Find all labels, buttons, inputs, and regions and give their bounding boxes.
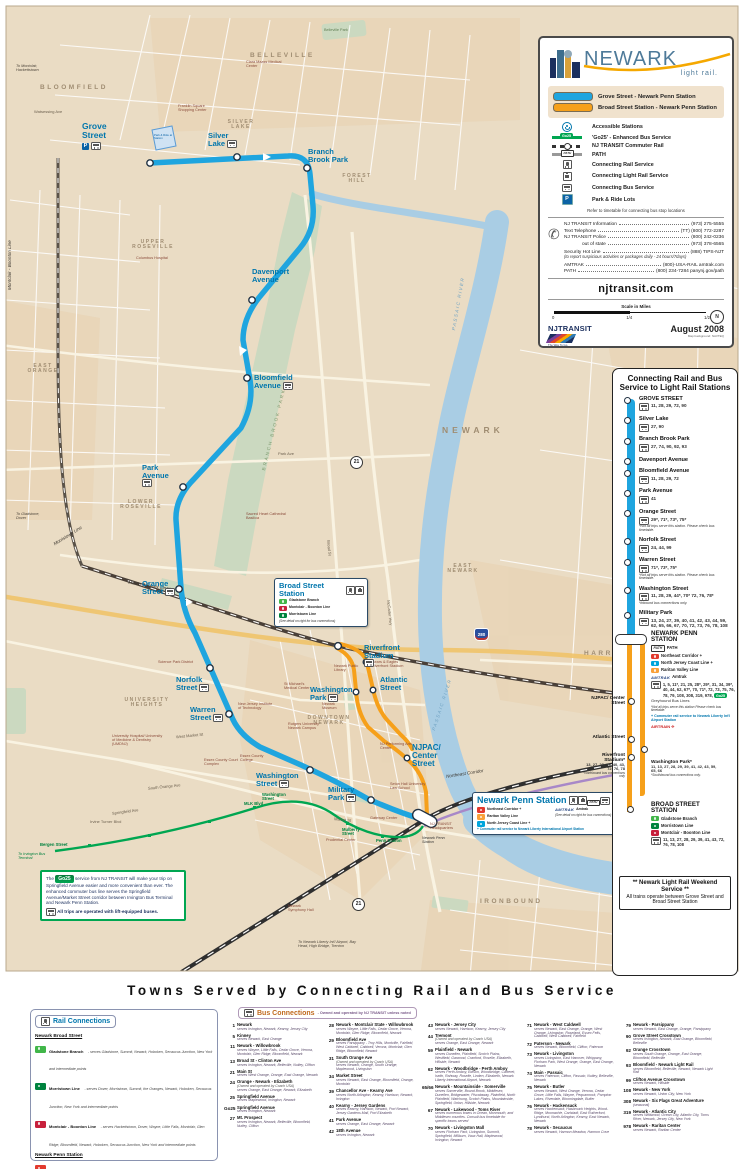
station-name: Norfolk Street: [639, 538, 733, 544]
go25-foot: All trips are operated with lift-equippe…: [46, 908, 180, 916]
connecting-rail-icon: [563, 160, 572, 169]
rail-line-row: Montclair - Boonton Line: [279, 606, 363, 612]
newark-penn-station-callout: Newark Penn Station PATH Northeast Corri…: [472, 792, 634, 835]
bus-route: 59 Plainfield - Newark serves Dunellen, …: [422, 1048, 516, 1064]
rail-line-icon: [477, 821, 485, 827]
station-name: Park Avenue: [639, 489, 733, 495]
bus-route-towns: serves Wildwood, Ocean City, Atlantic Ci…: [633, 1114, 714, 1122]
poi-label: Newark Public Library: [334, 664, 364, 672]
rail-line-icon: [35, 1041, 46, 1076]
bus-route-number: 31: [323, 1056, 334, 1072]
station-name: Warren Street: [190, 705, 216, 722]
route-label: Grove Street - Newark Penn Station: [598, 94, 696, 100]
path-label: PATH: [667, 646, 678, 650]
poi-label: Essex County College: [240, 754, 270, 762]
area-label: EAST ORANGE: [20, 364, 66, 375]
station-bus-row: 71*, 73*, 75*: [639, 565, 733, 573]
station-name: Davenport Avenue: [639, 458, 733, 464]
station-bus-row: 24, 44, 99: [639, 545, 733, 553]
bus-route-towns: serves Livingston, East Hanover, Whippan…: [534, 1057, 615, 1069]
rail-line-row: Morristown Line: [279, 613, 363, 619]
section-title: Towns Served by Connecting Rail and Bus …: [0, 983, 744, 998]
bus-route: 13 Broad St - Clinton Ave serves Irvingt…: [224, 1059, 318, 1068]
street-label: Broad St: [326, 540, 332, 556]
station-name: Military Park: [639, 611, 733, 617]
legend-box: NEWARK light rail. Grove Street - Newark…: [538, 36, 734, 348]
towns-served-section: Towns Served by Connecting Rail and Bus …: [0, 977, 744, 1169]
station-label-norfolk-street: Norfolk Street: [176, 676, 210, 692]
legend-symbol-label: Accessible Stations: [592, 124, 643, 130]
poi-label: NJ TRANSIT Headquarters: [430, 822, 466, 830]
rail-line-icon: [651, 668, 659, 674]
go25-stop-label: Bergen Street: [40, 843, 67, 847]
station-label-warren-street: Warren Street: [190, 706, 224, 722]
bus-route-number: Go25: [224, 1106, 235, 1115]
station-bus-row: 27, 90: [639, 424, 733, 432]
map-credit: Map background: NAVTEQ: [670, 334, 724, 338]
bus-route-towns: serves Newark, Hillside: [633, 1082, 685, 1086]
bus-route-towns: serves Orange, East Orange, Newark: [435, 1042, 493, 1046]
bus-route-number: 5: [224, 1034, 235, 1043]
station-label-military-park: Military Park: [328, 786, 358, 802]
bus-icon: [639, 424, 649, 432]
bus-route-towns: serves Newark, Harrison, Kearny, Jersey …: [435, 1028, 505, 1032]
bus-route-towns: serves Newark, Harmon Meadow, Harmon Cov…: [534, 1131, 609, 1135]
route-label: Broad Street Station - Newark Penn Stati…: [598, 105, 717, 111]
station-name: GROVE STREET: [639, 397, 733, 403]
poi-label: Newark Penn Station: [422, 836, 456, 844]
go25-text: The Go25 service from NJ TRANSIT will ma…: [46, 875, 180, 906]
connecting-bus-icon: [562, 184, 572, 192]
orange-line-bar: [627, 644, 632, 812]
station-name: Washington Street: [639, 587, 733, 593]
rail-group-header: Newark Broad Street: [35, 1034, 213, 1039]
bus-route-number: 978: [620, 1124, 631, 1133]
bus-icon: [651, 837, 661, 845]
bus-route: 90 Grove Street Crosstown serves Irvingt…: [620, 1034, 714, 1046]
rail-line-name: Gladstone Branch: [661, 817, 697, 821]
bus-route: 92 Orange Crosstown serves South Orange,…: [620, 1048, 714, 1060]
bus-icon: [639, 444, 649, 452]
bus-column: 79 Newark - Parsippany serves Newark, Ea…: [620, 1023, 714, 1145]
station-name: Atlantic Street: [380, 675, 408, 692]
station-name: Orange Street: [142, 579, 168, 596]
bus-route-number: 79: [620, 1023, 631, 1032]
station-name: Bloomfield Avenue: [639, 469, 733, 475]
station-name: BROAD STREET STATION: [651, 802, 711, 815]
bus-route-number: 92: [620, 1048, 631, 1060]
scale-tick: 1/4: [626, 315, 632, 320]
station-name: Silver Lake: [208, 131, 228, 148]
bus-route-towns: serves Perth Amboy, Edison, Woodbridge, …: [435, 1071, 516, 1083]
legend-symbol-label: Connecting Bus Service: [592, 185, 654, 191]
phone-value: (973) 378-6565: [691, 242, 724, 247]
rail-icon: [41, 1017, 50, 1026]
scale-label: Scale in Miles: [548, 304, 724, 309]
area-label: BELLEVILLE: [250, 52, 315, 59]
bus-route: 11 Newark - Willowbrook serves Wayne, Li…: [224, 1044, 318, 1056]
bus-route-number: 71: [521, 1023, 532, 1039]
station-label-grove-street: Grove Street P: [82, 122, 128, 150]
bus-icon: [639, 545, 649, 553]
go25-stop-label: Mulberry Street: [342, 828, 370, 837]
rail-line-icon: [35, 1116, 46, 1151]
station-name: NJPAC/ Center Street: [412, 743, 441, 768]
bus-icon: [639, 593, 649, 601]
rail-connections-header: Rail Connections: [35, 1015, 116, 1028]
rail-line-row: Morristown Line: [651, 823, 737, 829]
rail-connection-item: Northeast Corridor - serves Trenton, Pri…: [35, 1159, 213, 1169]
station-label-washington-park: Washington Park: [310, 686, 354, 702]
callout-note: (See detail on right for bus connections…: [279, 620, 363, 623]
bus-route-number: 65/66: [422, 1085, 433, 1105]
newark-light-rail-map-page: BELLEVILLE BLOOMFIELD SILVER LAKE FOREST…: [0, 0, 744, 1169]
bus-route-towns: serves Irvington, Newark, East Orange, B…: [633, 1038, 714, 1046]
panel-station-list: GROVE STREET 11, 28, 29, 72, 90 Silver L…: [623, 397, 733, 629]
bus-route-towns: (seasonal): [633, 1104, 704, 1108]
poi-label: University Hospital/ University of Medic…: [112, 734, 164, 746]
bus-route: 62 Newark - Woodbridge - Perth Amboy ser…: [422, 1067, 516, 1083]
phone-label: NJ TRANSIT Police: [564, 235, 606, 240]
bus-icon: [639, 517, 649, 525]
panel-station: Branch Brook Park 27, 74, 90, 92, 93: [639, 437, 733, 452]
bus-route-towns: serves Bloomfield, Belleville, Newark, N…: [633, 1068, 714, 1076]
rail-line-row: Montclair - Boonton Line: [651, 830, 737, 836]
penn-station-marker: [615, 634, 647, 645]
station-marker: [624, 612, 631, 619]
bus-route-towns: serves Newark, East Orange: [237, 1038, 282, 1042]
penn-connections: PATHPATH Northeast Corridor + North Jers…: [651, 645, 735, 729]
rail-line-name: Montclair - Boonton Line: [49, 1124, 96, 1129]
bus-route-towns: serves Hackensack, Hasbrouck Heights, Wo…: [534, 1108, 615, 1124]
bus-route-towns: serves Newark, Union City, New York: [633, 1093, 691, 1097]
phone-value: (TT) (800) 772-2287: [681, 229, 724, 234]
bus-route: 25 Springfield Avenue serves Maplewood, …: [224, 1095, 318, 1104]
rail-icon: [569, 796, 578, 805]
panel-station-broad-street: BROAD STREET STATION Gladstone Branch Mo…: [651, 802, 737, 847]
rail-line-icon: [35, 1078, 46, 1113]
bus-route: 31 South Orange Ave (Owned and operated …: [323, 1056, 417, 1072]
rail-connection-item: Montclair - Boonton Line - serves Hacket…: [35, 1115, 213, 1151]
legend-footnote: Refer to timetable for connecting bus st…: [548, 208, 724, 213]
station-label-atlantic-street: Atlantic Street: [380, 676, 414, 691]
bus-route-number: 108: [620, 1088, 631, 1097]
bus-route: 44 Tremont (Owned and operated by Coach …: [422, 1034, 516, 1046]
bus-routes: 71*, 73*, 75*: [651, 565, 729, 570]
scale-tick: 0: [552, 315, 554, 320]
light-rail-icon: [578, 796, 587, 805]
rail-line-icon: [279, 599, 287, 605]
poi-label: Essex County Court Complex: [204, 758, 240, 766]
panel-lower: NEWARK PENN STATION PATHPATH Northeast C…: [617, 634, 733, 870]
area-label: LOWER ROSEVILLE: [118, 500, 164, 511]
poi-label: Newark Museum: [322, 702, 350, 710]
destination-label: To Gladstone, Dover: [16, 512, 50, 520]
station-name: Warren Street: [639, 558, 733, 564]
go25-line-icon: Go25: [552, 136, 582, 139]
rail-line-name: North Jersey Coast Line +: [661, 661, 713, 665]
destination-label: To Irvington Bus Terminal: [18, 852, 52, 860]
amtrak-label: Amtrak: [576, 808, 588, 812]
area-label: FOREST HILL: [334, 174, 380, 185]
station-label-park-avenue: Park Avenue: [142, 464, 178, 487]
station-marker: [624, 438, 631, 445]
bus-route-towns: serves Newark, East Orange, Orange, West…: [534, 1028, 615, 1040]
poi-label: Sacred Heart Cathedral Basilica: [246, 512, 286, 520]
bus-route: 41 Park Avenue serves Orange, East Orang…: [323, 1118, 417, 1127]
bus-route-number: 59: [422, 1048, 433, 1064]
bus-route-towns: serves South Orange, Orange, East Orange…: [633, 1053, 714, 1061]
bus-route: 79 Newark - Parsippany serves Newark, Ea…: [620, 1023, 714, 1032]
park-ride-note: Park & Ride at Station: [154, 134, 174, 140]
phone-label: Text Telephone: [564, 229, 596, 234]
go25-stop-label: Washington Street: [262, 793, 294, 802]
bus-route-towns: serves Irvington, Newark, Kearny, Jersey…: [237, 1028, 308, 1032]
bus-route-towns: serves Wayne, Little Falls, Cedar Grove,…: [336, 1028, 417, 1036]
bus-routes: 11, 28, 29, 44*, 70* 72, 76, 78*: [651, 593, 729, 598]
legend-route-row: Grove Street - Newark Penn Station: [553, 92, 719, 101]
station-label-washington-street: Washington Street: [256, 772, 314, 788]
bus-routes: 24, 44, 99: [651, 545, 729, 550]
street-label: Irvine Turner Blvd: [90, 820, 121, 824]
station-name: Riverfront Stadium: [364, 643, 400, 660]
panel-station: Bloomfield Avenue 11, 28, 29, 72: [639, 469, 733, 484]
njtransit-stripes: [546, 334, 576, 343]
street-label: Park Ave: [278, 452, 294, 456]
bus-route-number: 72: [521, 1042, 532, 1051]
poi-label: Franklin Square Shopping Center: [178, 104, 214, 112]
bus-route-number: 24: [224, 1080, 235, 1092]
bus-route-towns: serves Newark, Raritan Center: [633, 1129, 681, 1133]
station-label-silver-lake: Silver Lake: [208, 132, 242, 148]
light-rail-icon: [355, 586, 364, 595]
bus-icon: [142, 479, 152, 487]
street-label: Watsessing Ave: [34, 110, 62, 114]
njtransit-tagline: The Way To Go.: [548, 343, 592, 347]
bus-route-number: 13: [224, 1059, 235, 1068]
weekend-title: ** Newark Light Rail Weekend Service **: [622, 880, 728, 893]
bus-route: 319 Newark - Atlantic City serves Wildwo…: [620, 1110, 714, 1122]
rail-line-name: Northeast Corridor +: [661, 654, 702, 658]
amtrak-label: Amtrak: [672, 675, 686, 679]
bus-route-towns: serves Orange, East Orange, Newark, Eliz…: [237, 1089, 312, 1093]
bus-icon: [639, 496, 649, 504]
penn-bus-routes: 1, 5, 11*, 21, 25, 28*, 29*, 31, 34, 39*…: [663, 682, 735, 698]
bus-column: 43 Newark - Jersey City serves Newark, H…: [422, 1023, 516, 1145]
rail-connection-item: Morristown Line - serves Dover, Morristo…: [35, 1077, 213, 1113]
rail-group-header: Newark Penn Station: [35, 1153, 213, 1158]
station-note: *Not all trips serve this station. Pleas…: [639, 525, 719, 532]
weekend-body: All trains operate between Grove Street …: [622, 895, 728, 907]
legend-symbol-label: PATH: [592, 152, 606, 158]
bus-route-number: 43: [422, 1023, 433, 1032]
rail-icon: [346, 586, 355, 595]
legend-symbols: Accessible Stations Go25'Go25' - Enhance…: [548, 122, 724, 205]
bus-routes: 27, 74, 90, 92, 93: [651, 444, 729, 449]
bus-route-number: 73: [521, 1052, 532, 1068]
poi-label: NJ Performing Arts Center: [380, 742, 414, 750]
station-name: NJPAC/ Center Street: [583, 696, 625, 706]
bus-route-towns: serves Irvington, Newark, Belleville, Nu…: [237, 1064, 315, 1068]
bus-routes: 27, 90: [651, 424, 729, 429]
bus-route: 21 Main St serves West Orange, Orange, E…: [224, 1070, 318, 1079]
bus-route: Go25 Springfield Avenue serves Irvington…: [224, 1106, 318, 1115]
rail-line-name: Montclair - Boonton Line: [289, 606, 330, 610]
station-bus-row: 41: [639, 496, 733, 504]
bus-route: 72 Paterson - Newark serves Newark, Bloo…: [521, 1042, 615, 1051]
legend-symbol-label: NJ TRANSIT Commuter Rail: [592, 143, 664, 149]
phone-icon: ✆: [548, 226, 560, 243]
bus-icon: [46, 908, 56, 916]
station-label-njpac-center-street: NJPAC/ Center Street: [412, 744, 460, 768]
station-note: *Not all trips serve this station. Pleas…: [639, 574, 719, 581]
bus-route: 28 Newark - Montclair State - Willowbroo…: [323, 1023, 417, 1035]
rail-line-label: Montclair - Boonton Line: [8, 240, 13, 290]
callout-title: Broad Street Station: [279, 582, 339, 597]
bus-route-towns: serves Florham Park, Livingston, Summit,…: [435, 1131, 516, 1143]
bus-route-number: 319: [620, 1110, 631, 1122]
bus-route: 76 Newark - Hackensack serves Hackensack…: [521, 1104, 615, 1124]
orange-line-bar: [640, 644, 645, 796]
amtrak-logo: AMTRAK: [555, 807, 574, 812]
rail-line-name: Gladstone Branch: [49, 1049, 83, 1054]
station-marker: [628, 698, 635, 705]
bus-route-towns: serves Newark, East Orange, Bloomfield, …: [336, 1079, 417, 1087]
rail-line-icon: [279, 606, 287, 612]
poi-label: Clara Maass Medical Center: [246, 60, 290, 68]
bus-route: 978 Newark - Raritan Center serves Newar…: [620, 1124, 714, 1133]
station-name: Atlantic Street: [583, 735, 625, 740]
phone-label: AMTRAK: [564, 263, 584, 268]
panel-station-njpac: NJPAC/ Center Street: [583, 696, 625, 706]
bus-route-number: 11: [224, 1044, 235, 1056]
airtrain-text: AIRTRAIN: [651, 724, 670, 729]
bus-route: 1 Newark serves Irvington, Newark, Kearn…: [224, 1023, 318, 1032]
area-label: NEWARK: [442, 426, 504, 435]
weekend-service-box: ** Newark Light Rail Weekend Service ** …: [619, 876, 731, 910]
station-bus-row: 27, 74, 90, 92, 93: [639, 444, 733, 452]
legend-routes: Grove Street - Newark Penn Station Broad…: [548, 86, 724, 118]
panel-station: Silver Lake 27, 90: [639, 417, 733, 432]
bus-route-number: 42: [323, 1129, 334, 1138]
rail-line-name: Morristown Line: [289, 613, 316, 617]
station-marker: [641, 746, 648, 753]
bus-route-towns: serves Orange, East Orange, Newark: [336, 1123, 394, 1127]
bus-connections-columns: 1 Newark serves Irvington, Newark, Kearn…: [224, 1023, 716, 1145]
bus-routes: 11, 28, 29, 72: [651, 476, 729, 481]
bus-route-number: 1: [224, 1023, 235, 1032]
rail-line-icon: [651, 823, 659, 829]
bus-routes: 29*, 71*, 73*, 75*: [651, 517, 729, 522]
bus-icon: [639, 618, 649, 626]
bus-route-number: 78: [521, 1126, 532, 1135]
go25-logo: Go25: [55, 875, 74, 883]
bus-route: 42 18th Avenue serves Irvington, Newark: [323, 1129, 417, 1138]
station-name: Branch Brook Park: [308, 147, 348, 164]
bus-icon: [213, 714, 223, 722]
station-bus-row: 13, 24, 27, 39, 40, 41, 42, 43, 44, 59, …: [639, 618, 733, 629]
bus-connections-header: Bus Connections - Owned and operated by …: [238, 1007, 417, 1019]
security-note: (to report suspicious activities or pack…: [564, 255, 724, 260]
bus-header-note: - Owned and operated by NJ TRANSIT unles…: [318, 1011, 411, 1015]
bus-route: 75 Newark - Butler serves Newark, West O…: [521, 1085, 615, 1101]
rail-line-icon: [35, 1160, 46, 1169]
scale-bar: Scale in Miles N 0 1/4 1/2: [548, 304, 724, 320]
bus-route-towns: serves Newark, Bloomfield, Clifton, Pate…: [534, 1046, 603, 1050]
bus-route-towns: serves West Orange, Orange, East Orange,…: [237, 1074, 318, 1078]
station-marker: [624, 490, 631, 497]
rail-header-label: Rail Connections: [53, 1018, 110, 1025]
rail-line-name: Montclair - Boonton Line: [661, 831, 710, 835]
station-note: *Inbound bus connections only.: [639, 602, 719, 606]
panel-station: GROVE STREET 11, 28, 29, 72, 90: [639, 397, 733, 412]
bus-route: 67 Newark - Lakewood - Toms River serves…: [422, 1108, 516, 1124]
bus-route-towns: serves Dunellen, Plainfield, Scotch Plai…: [435, 1053, 516, 1065]
amtrak-logo: AMTRAK: [651, 675, 670, 680]
bus-route-number: 44: [422, 1034, 433, 1046]
path-icon: PATH: [651, 645, 665, 652]
station-name: Park Avenue: [142, 463, 169, 480]
bus-icon: [639, 476, 649, 484]
station-label-bloomfield-avenue: Bloomfield Avenue: [254, 374, 296, 390]
station-label-davenport-avenue: Davenport Avenue: [252, 268, 292, 283]
bus-route: 40 Kearny - Jersey Gardens serves Kearny…: [323, 1104, 417, 1116]
skyline-icon: [548, 46, 582, 80]
bus-route-towns: serves numerous towns in Ocean, Monmouth…: [435, 1112, 516, 1124]
phone-label: NJ TRANSIT Information: [564, 222, 617, 227]
phone-value: (888) TIPS-NJT: [691, 250, 725, 255]
penn-station-name: NEWARK PENN STATION: [651, 631, 711, 644]
bus-route-towns: serves Kearny, Harrison, Newark, Port Ne…: [336, 1108, 417, 1116]
rail-line-icon: [651, 830, 659, 836]
bus-route-number: 25: [224, 1095, 235, 1104]
bus-route-towns: serves Parsippany - Troy Hills, Montvill…: [336, 1042, 417, 1054]
bus-route: 5 Kinney serves Newark, East Orange: [224, 1034, 318, 1043]
phone-block: ✆ NJ TRANSIT Information(973) 275-5555 T…: [548, 222, 724, 274]
bus-route-number: 74: [521, 1071, 532, 1083]
rail-line-row: Northeast Corridor +: [477, 807, 551, 813]
rail-line-icon: [651, 654, 659, 660]
panel-station: Norfolk Street 24, 44, 99: [639, 538, 733, 553]
bus-routes: 11, 13, 27, 28, 29, 39, 41, 43, 72, 76, …: [663, 837, 727, 847]
callout-title: Newark Penn Station PATH: [477, 796, 629, 806]
bus-route: 29 Bloomfield Ave serves Parsippany - Tr…: [323, 1038, 417, 1054]
go25-badge: Go25: [714, 693, 727, 698]
route-line-swatch: [553, 92, 593, 101]
airport-note: + Commuter rail service to Newark Libert…: [651, 715, 735, 723]
bus-route-towns: serves Maplewood, Irvington, Newark: [237, 1099, 295, 1103]
rail-connections-box: Rail Connections Newark Broad Street Gla…: [30, 1009, 218, 1161]
bus-route-number: 93: [620, 1063, 631, 1075]
bus-route-towns: serves Irvington, Newark: [336, 1134, 375, 1138]
station-name: Norfolk Street: [176, 675, 202, 692]
go25-lead: The: [46, 876, 54, 881]
poi-label: Newark Symphony Hall: [288, 904, 318, 912]
rail-line-name: Raritan Valley Line: [487, 815, 518, 819]
go25-stop-label: Penn Station: [376, 839, 402, 843]
rail-line-name: Raritan Valley Line: [661, 668, 698, 672]
rail-line-name: Morristown Line: [49, 1086, 80, 1091]
route-21-shield: 21: [352, 898, 365, 911]
divider: [548, 217, 724, 218]
rail-connection-item: Gladstone Branch - serves Gladstone, Sum…: [35, 1040, 213, 1076]
rail-line-name: Northeast Corridor +: [487, 808, 521, 812]
bus-icon: [651, 681, 661, 689]
bus-route: 43 Newark - Jersey City serves Newark, H…: [422, 1023, 516, 1032]
rail-line-grid: Northeast Corridor + Raritan Valley Line…: [477, 806, 629, 827]
phone-value: (800) 242-0236: [691, 235, 724, 240]
station-marker: [624, 470, 631, 477]
